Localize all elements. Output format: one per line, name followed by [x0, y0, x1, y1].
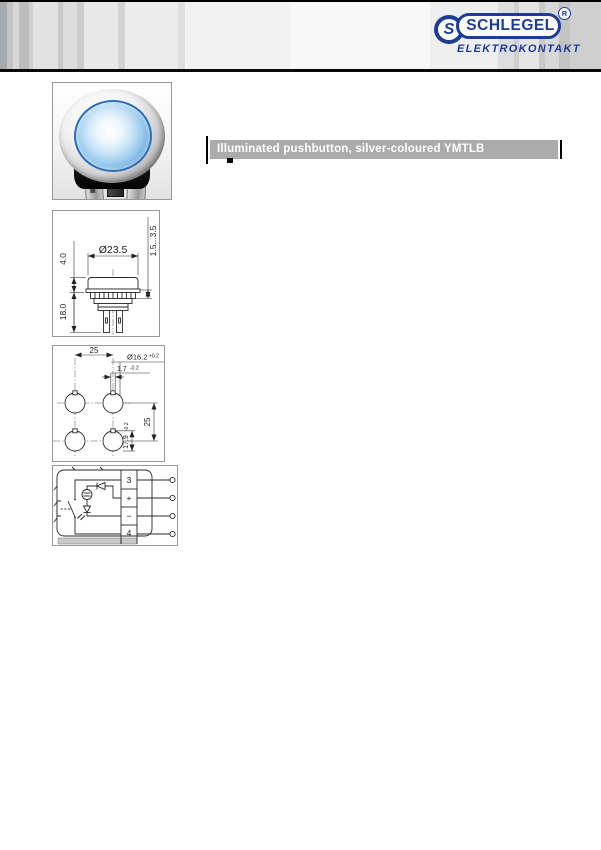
svg-text:25: 25	[90, 346, 99, 355]
mounting-holes	[65, 391, 123, 451]
product-photo	[52, 82, 172, 200]
switch-symbol	[57, 480, 121, 534]
svg-text:Ø23.5: Ø23.5	[99, 244, 128, 256]
brand-subtitle: ELEKTROKONTAKT	[457, 43, 597, 55]
drilling-plan: 25 Ø16.2 +0.2 1.7 -0.2 25	[52, 345, 165, 462]
svg-text:18.0: 18.0	[58, 303, 68, 320]
dim-notch-width: 1.7 -0.2	[102, 366, 150, 391]
page-header: S SCHLEGEL R ELEKTROKONTAKT	[0, 0, 601, 72]
terminal-label-plus: +	[127, 493, 132, 503]
led-branch	[78, 483, 122, 521]
circuit-diagram-svg: 3 + − 4	[53, 466, 177, 545]
terminal-label-minus: −	[127, 511, 132, 521]
dim-hole-diameter: Ø16.2 +0.2	[111, 353, 164, 397]
brand-wordmark: SCHLEGEL	[456, 13, 561, 39]
svg-text:17.9: 17.9	[123, 435, 130, 449]
title-bar-right-tick	[560, 140, 562, 159]
svg-text:1.5...3.5: 1.5...3.5	[148, 225, 158, 256]
datasheet-page: { "page": { "width": 601, "height": 850,…	[0, 0, 601, 850]
svg-text:+0.2: +0.2	[149, 354, 159, 360]
svg-text:4.0: 4.0	[58, 253, 68, 265]
external-leads	[137, 477, 175, 536]
current-limiter-symbol	[82, 490, 92, 500]
title-bar-marker	[227, 158, 233, 163]
svg-text:-0.2: -0.2	[130, 366, 139, 372]
svg-text:-0.2: -0.2	[124, 422, 130, 431]
dim-panel-thickness: 1.5...3.5	[136, 217, 159, 299]
product-title-bar: Illuminated pushbutton, silver-coloured …	[210, 140, 558, 159]
dimension-drawing-svg: Ø23.5 4.0 18.0 1.5...3.5	[53, 211, 159, 336]
terminal-label-4: 4	[127, 528, 132, 538]
svg-text:Ø16.2: Ø16.2	[127, 353, 147, 362]
drilling-plan-svg: 25 Ø16.2 +0.2 1.7 -0.2 25	[53, 346, 164, 461]
svg-text:1.7: 1.7	[117, 366, 127, 373]
title-bar-left-tick	[206, 136, 208, 164]
dimension-drawing: Ø23.5 4.0 18.0 1.5...3.5	[52, 210, 160, 337]
terminal-strip: 3 + − 4	[121, 470, 137, 544]
dim-pitch-horizontal: 25	[75, 346, 113, 355]
svg-text:25: 25	[143, 417, 152, 426]
terminal-label-3: 3	[127, 475, 132, 485]
registered-trademark-icon: R	[558, 7, 571, 20]
pushbutton-lens	[74, 100, 152, 172]
led-symbol	[84, 506, 91, 513]
circuit-diagram: 3 + − 4	[52, 465, 178, 546]
